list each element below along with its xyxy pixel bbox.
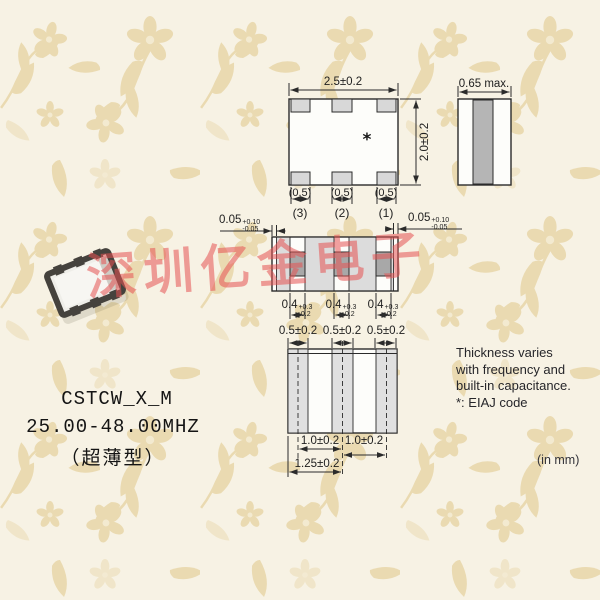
dim-top-height-label: 2.0±0.2	[419, 123, 431, 161]
top-pad-3	[291, 99, 310, 112]
side-view-drawing	[458, 86, 511, 185]
dim-pad-width-3: (0.5)	[289, 187, 312, 199]
dim-strip-width-1: 0.5±0.2	[367, 325, 405, 337]
bottom-pad-1	[377, 172, 396, 185]
bottom-pad-2	[332, 172, 352, 185]
dim-thickness-label: 0.65 max.	[459, 78, 510, 90]
eiaj-code-mark: *	[363, 130, 372, 150]
dim-electrode-1: 0.4+0.3-0.2	[368, 299, 399, 318]
units-note: (in mm)	[537, 453, 579, 467]
note-line-3: built-in capacitance.	[456, 378, 571, 395]
product-frequency-range: 25.00-48.00MHZ	[26, 416, 200, 438]
product-model: CSTCW_X_M	[61, 388, 173, 410]
dim-electrode-2: 0.4+0.3-0.2	[326, 299, 357, 318]
dim-strip-width-3: 0.5±0.2	[279, 325, 317, 337]
side-view-element-stripe	[473, 100, 493, 184]
terminal-label-2: (2)	[335, 206, 350, 220]
dim-electrode-3: 0.4+0.3-0.2	[282, 299, 313, 318]
thickness-note: Thickness varies with frequency and buil…	[456, 345, 571, 411]
datasheet-page: 2.5±0.2 0.65 max. 2.0±0.2 (0.5) (0.5) (0…	[0, 0, 600, 600]
top-pad-1	[377, 99, 396, 112]
dim-top-width-label: 2.5±0.2	[324, 76, 362, 88]
dim-pitch-left: 1.0±0.2	[301, 435, 339, 447]
dim-pitch-right: 1.0±0.2	[345, 435, 383, 447]
dim-edge-to-center: 1.25±0.2	[295, 458, 340, 470]
note-line-2: with frequency and	[456, 362, 571, 379]
terminal-label-3: (3)	[293, 206, 308, 220]
note-line-4: *: EIAJ code	[456, 395, 571, 412]
product-package-note: （超薄型）	[60, 443, 165, 470]
dim-pad-width-2: (0.5)	[331, 187, 354, 199]
bottom-pad-3	[291, 172, 310, 185]
top-pad-2	[332, 99, 352, 112]
dim-strip-width-2: 0.5±0.2	[323, 325, 361, 337]
note-line-1: Thickness varies	[456, 345, 571, 362]
dim-pad-width-1: (0.5)	[375, 187, 398, 199]
